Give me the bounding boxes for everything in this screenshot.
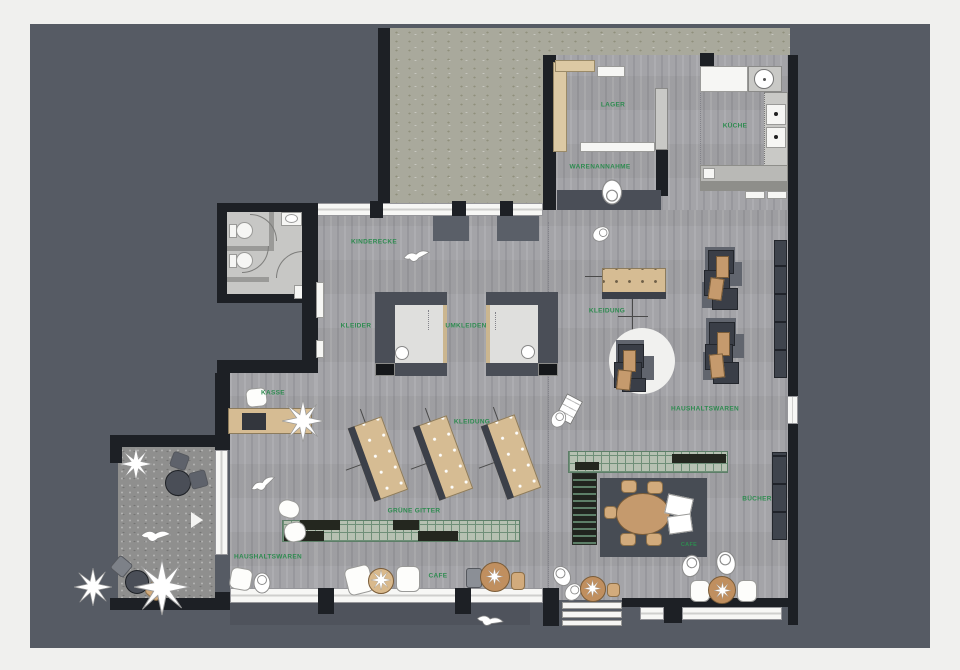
entry-step <box>562 611 622 618</box>
plant-icon <box>486 568 503 585</box>
hanger-rail <box>618 316 648 317</box>
paper-sheets <box>667 513 693 534</box>
rack-bar-top <box>486 292 558 305</box>
wall-shelf-white <box>316 340 324 358</box>
plant-icon <box>371 570 391 590</box>
cafe-chair <box>737 580 757 602</box>
cafe-chair <box>511 572 525 590</box>
wc-partition <box>227 277 269 282</box>
storage-shelf-white <box>597 66 625 77</box>
zone-label-haushaltswaren-right: HAUSHALTSWAREN <box>671 406 739 413</box>
book-shelf <box>772 452 787 540</box>
kitchen-wall-stub <box>700 53 714 66</box>
courtyard <box>390 28 543 210</box>
entry-door-post <box>543 588 559 626</box>
dining-chair <box>647 481 663 494</box>
terrace-table <box>165 470 191 496</box>
sofa-cushion <box>623 350 636 372</box>
kitchen-island-front <box>700 182 788 191</box>
zone-label-lager: LAGER <box>601 102 625 109</box>
zone-label-cafe-rug: CAFE <box>681 542 697 548</box>
rack-block <box>538 363 558 376</box>
grid-dark-block <box>672 454 726 463</box>
zone-label-haushaltswaren-left: HAUSHALTSWAREN <box>234 554 302 561</box>
building-wall-right <box>788 55 798 625</box>
zone-label-kleidung-center: KLEIDUNG <box>454 419 490 426</box>
armchair <box>228 566 253 591</box>
cafe-chair <box>690 580 710 602</box>
plant-icon <box>120 448 152 480</box>
person-icon <box>252 570 272 596</box>
grid-dark-block <box>418 531 458 541</box>
dining-chair <box>646 533 662 546</box>
hanger-line <box>428 310 429 330</box>
grid-dark-block <box>393 520 419 530</box>
wall-shelf-right <box>774 240 787 378</box>
grid-dark-block <box>575 462 599 470</box>
zone-label-cafe: CAFE <box>429 573 448 580</box>
rack-block <box>375 363 395 376</box>
plant-icon <box>134 558 190 616</box>
armchair <box>396 566 420 592</box>
plant-icon <box>714 582 731 599</box>
window-bottom-right <box>640 607 664 620</box>
window-mullion <box>318 588 334 614</box>
hanger-line <box>495 312 496 330</box>
zone-label-umkleiden: UMKLEIDEN <box>445 323 486 330</box>
grid-dark-block <box>300 520 340 530</box>
kitchen-shelf <box>767 191 787 199</box>
sofa-cushion <box>616 369 632 390</box>
zone-label-kinderecke: KINDERECKE <box>351 239 397 246</box>
sofa-cushion <box>716 256 729 278</box>
person-icon <box>600 176 624 208</box>
zone-label-kueche: KÜCHE <box>723 123 748 130</box>
dining-chair <box>621 480 637 493</box>
wall-shelf-white <box>316 282 324 318</box>
dining-chair <box>620 533 636 546</box>
zone-label-warenannahme: WARENANNAHME <box>569 164 630 171</box>
zone-label-kasse: KASSE <box>261 390 285 397</box>
stove-knob-icon <box>774 112 778 116</box>
kitchen-appliance <box>703 168 715 179</box>
floor-seam-line <box>548 222 549 592</box>
rack-bar-top <box>375 292 447 305</box>
slatted-shelf <box>572 473 597 545</box>
window-mullion <box>664 605 682 623</box>
zone-label-gruene-gitter: GRÜNE GITTER <box>388 508 441 515</box>
courtyard-wall-left <box>378 28 390 210</box>
zone-label-kleider: KLEIDER <box>341 323 372 330</box>
wall-kasse-top <box>217 360 317 373</box>
entrance-arrow-icon <box>191 512 203 528</box>
terrace-wall-top <box>110 435 230 447</box>
cash-register-icon <box>242 413 266 430</box>
hanger-rail <box>632 299 633 331</box>
dining-table-oval <box>616 493 670 535</box>
storage-shelf-bottom <box>580 142 655 152</box>
kitchen-counter <box>700 66 748 92</box>
floorplan-canvas: LAGER KÜCHE WARENANNAHME KINDERECKE KLEI… <box>0 0 960 670</box>
window-mullion <box>455 588 471 614</box>
zone-label-kleidung-right: KLEIDUNG <box>589 308 625 315</box>
storage-shelf-top <box>555 60 595 72</box>
window-right-wall <box>787 396 798 424</box>
rack-column <box>538 305 558 363</box>
storage-divider-shelf <box>655 88 668 150</box>
terrace-glass-wall <box>215 450 228 555</box>
plant-icon <box>584 580 601 597</box>
play-mat <box>433 216 469 241</box>
cafe-chair <box>607 583 620 597</box>
window-bottom-right <box>682 607 782 620</box>
play-mat <box>497 216 539 241</box>
rack-column <box>375 305 395 363</box>
zone-label-buecher: BÜCHER <box>742 496 772 503</box>
sink-drain-icon <box>763 78 766 81</box>
storage-shelf-vertical <box>553 62 567 152</box>
bird-icon <box>403 247 431 267</box>
stove-knob-icon <box>774 135 778 139</box>
display-table-edge <box>602 292 666 299</box>
courtyard-strip <box>543 28 790 55</box>
washbasin-bowl-icon <box>285 214 298 223</box>
sofa-cushion <box>709 353 725 378</box>
window-mullion <box>370 201 383 218</box>
kitchen-shelf <box>745 191 765 199</box>
plant-icon <box>74 568 112 606</box>
display-table-kleidung <box>602 268 666 294</box>
entry-step <box>562 620 622 626</box>
sofa-cushion <box>717 332 730 356</box>
plant-icon <box>282 400 324 442</box>
fitting-stool-icon <box>395 346 409 360</box>
fitting-stool-icon <box>521 345 535 359</box>
